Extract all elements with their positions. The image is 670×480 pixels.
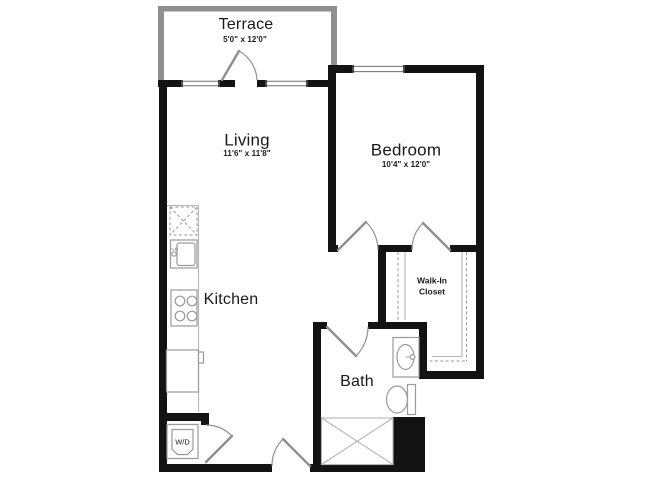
closet-door: [412, 223, 450, 250]
bedroom-window: [352, 65, 405, 73]
shower: [322, 418, 394, 465]
stove: [171, 290, 197, 326]
bath-label: Bath: [340, 374, 374, 390]
walk-in-closet-label-line1: Walk-In: [417, 276, 447, 287]
living-dimensions: 11'6" x 11'8": [223, 150, 270, 158]
bath-door: [327, 327, 368, 356]
plumbing-chase: [393, 417, 425, 472]
washer-dryer-label: W/D: [175, 438, 190, 446]
bedroom-dimensions: 10'4" x 12'0": [382, 161, 430, 169]
washer-dryer-door: [206, 425, 232, 462]
bath-sink: [393, 338, 419, 378]
entry-door: [272, 439, 310, 466]
refrigerator: [167, 350, 204, 392]
floor-plan: Terrace 5'0" x 12'0" Living 11'6" x 11'8…: [0, 0, 670, 480]
kitchen-label: Kitchen: [204, 292, 259, 308]
kitchen-sink: [171, 240, 198, 268]
windows: [181, 65, 405, 87]
bedroom-label: Bedroom: [371, 142, 441, 159]
terrace-dimensions: 5'0" x 12'0": [223, 36, 267, 44]
floor-plan-drawing: [0, 0, 670, 480]
bedroom-door: [338, 222, 378, 250]
walk-in-closet-label-line2: Closet: [417, 286, 447, 297]
terrace-label: Terrace: [219, 17, 274, 33]
toilet: [387, 385, 416, 415]
living-label: Living: [224, 132, 270, 149]
kitchen-cabinet: [170, 207, 197, 235]
walk-in-closet-label: Walk-In Closet: [417, 276, 447, 297]
terrace-door: [222, 51, 257, 80]
kitchen-fixtures: [167, 205, 204, 412]
living-window-right: [265, 80, 308, 87]
living-window-left: [181, 80, 220, 87]
unit-walls: [158, 65, 484, 472]
